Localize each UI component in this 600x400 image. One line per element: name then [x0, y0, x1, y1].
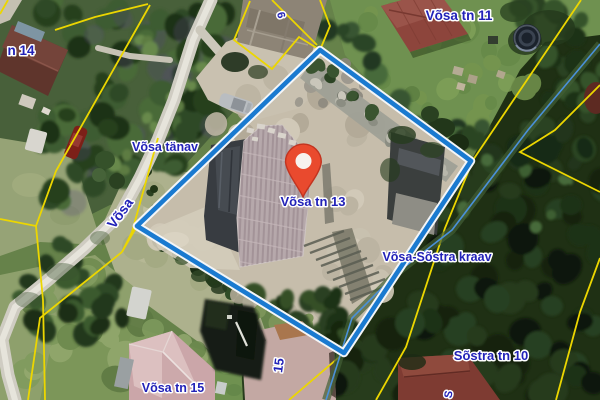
svg-text:n 14: n 14: [7, 43, 35, 58]
svg-text:Võsa tänav: Võsa tänav: [132, 140, 198, 154]
svg-text:Sõstra tn 10: Sõstra tn 10: [454, 348, 528, 363]
svg-text:15: 15: [270, 357, 287, 373]
svg-text:Võsa tn 15: Võsa tn 15: [142, 381, 205, 395]
svg-text:Võsa tn 13: Võsa tn 13: [280, 194, 345, 209]
svg-text:Võsa-Sõstra kraav: Võsa-Sõstra kraav: [382, 250, 491, 264]
svg-text:Võsa tn 11: Võsa tn 11: [426, 8, 493, 23]
